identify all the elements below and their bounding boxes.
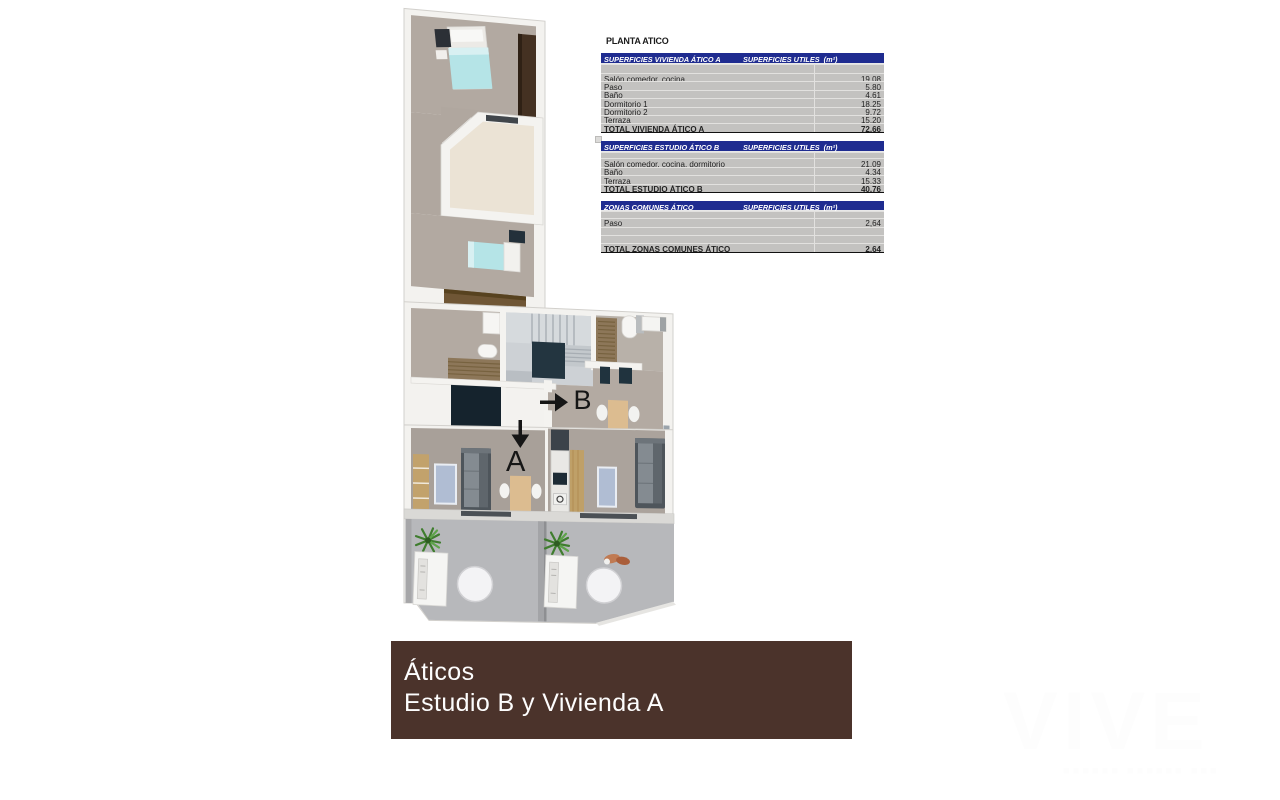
svg-text:A: A	[506, 446, 526, 478]
svg-text:B: B	[574, 385, 592, 415]
